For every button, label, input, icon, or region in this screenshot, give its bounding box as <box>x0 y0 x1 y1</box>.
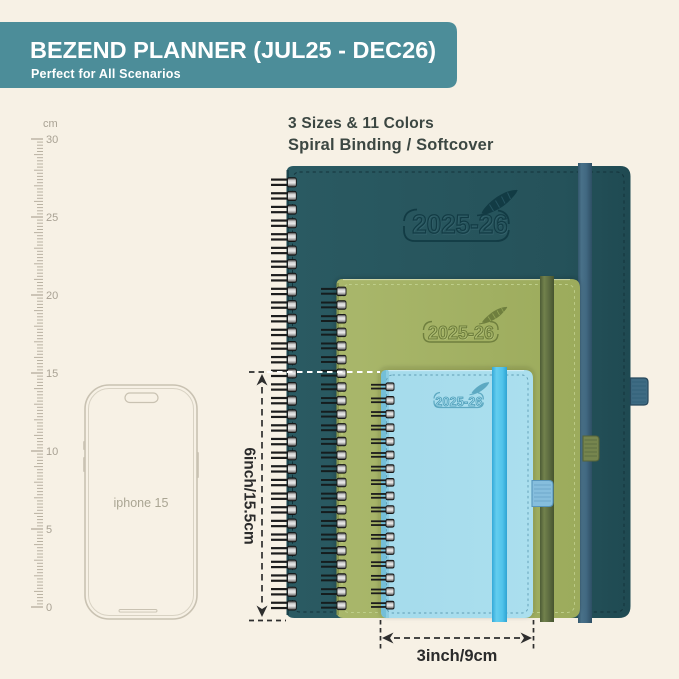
svg-text:Spiral Binding / Softcover: Spiral Binding / Softcover <box>288 136 494 154</box>
svg-text:cm: cm <box>43 118 58 130</box>
svg-text:2025-26: 2025-26 <box>412 209 507 239</box>
svg-text:15: 15 <box>46 368 58 380</box>
svg-text:3inch/9cm: 3inch/9cm <box>417 647 498 665</box>
svg-text:20: 20 <box>46 290 58 302</box>
svg-text:2025-26: 2025-26 <box>428 323 494 343</box>
svg-text:30: 30 <box>46 134 58 146</box>
svg-text:6inch/15.5cm: 6inch/15.5cm <box>241 447 258 544</box>
svg-text:iphone 15: iphone 15 <box>114 496 169 510</box>
svg-text:BEZEND PLANNER (JUL25 - DEC26): BEZEND PLANNER (JUL25 - DEC26) <box>30 37 436 63</box>
svg-text:10: 10 <box>46 446 58 458</box>
svg-text:5: 5 <box>46 524 52 536</box>
svg-text:2025-26: 2025-26 <box>435 395 482 409</box>
svg-text:25: 25 <box>46 212 58 224</box>
svg-text:Perfect for All Scenarios: Perfect for All Scenarios <box>31 67 181 81</box>
svg-text:0: 0 <box>46 602 52 614</box>
svg-text:3 Sizes & 11 Colors: 3 Sizes & 11 Colors <box>288 115 434 132</box>
